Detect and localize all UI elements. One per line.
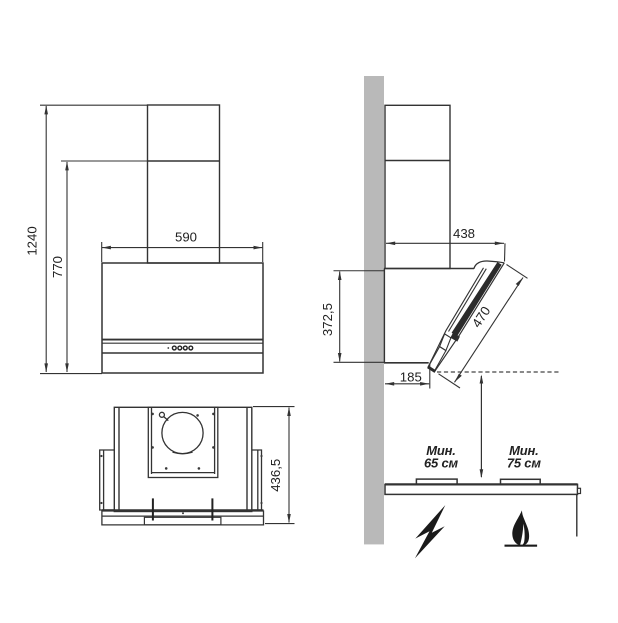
svg-text:590: 590 (175, 230, 197, 245)
svg-text:770: 770 (50, 256, 65, 278)
svg-text:438: 438 (453, 226, 475, 241)
svg-text:185: 185 (400, 370, 422, 385)
svg-text:372,5: 372,5 (320, 303, 335, 336)
svg-text:436,5: 436,5 (268, 459, 283, 492)
svg-text:1240: 1240 (25, 226, 40, 255)
svg-text:75 см: 75 см (507, 455, 542, 470)
svg-text:65 см: 65 см (424, 455, 459, 470)
